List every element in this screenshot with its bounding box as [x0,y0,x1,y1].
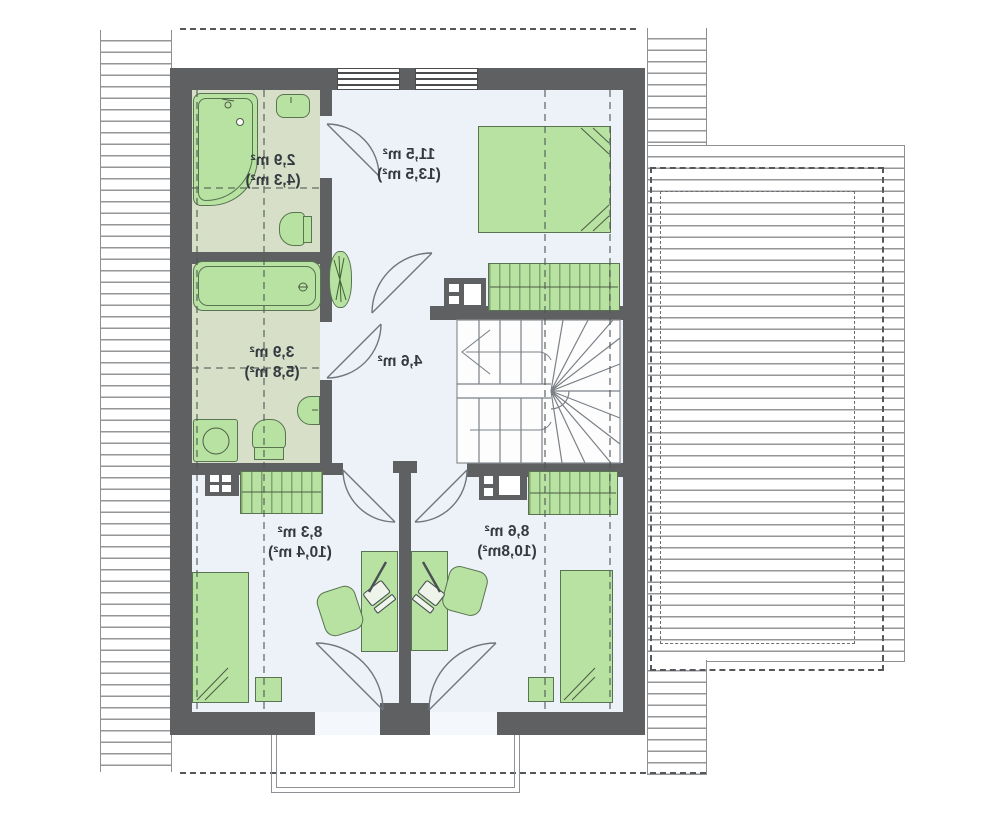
sink-icon [276,94,310,118]
window-top-2 [415,68,478,90]
wall-ensuite-b [320,178,332,252]
balcony-door-opening-left [315,712,382,735]
bed-icon [560,570,613,703]
toilet-tank [303,216,312,243]
bathtub-icon [193,261,321,311]
dresser-icon [444,278,486,311]
wall-center-cap [393,461,417,473]
wall-bathroom-b [320,380,332,463]
wall-ensuite-a [320,90,332,116]
toilet-icon [252,419,286,449]
dresser-icon [205,471,239,496]
balcony-railing-inner [276,735,515,788]
sink-icon [297,396,320,425]
roof-hatch-right-strip-bottom [647,660,707,775]
potted-plant-icon [329,251,352,308]
roof-hatch-left-strip [100,30,172,772]
roof-hatch-right-strip-top [647,28,707,145]
double-bed-icon [478,126,611,233]
bed-icon [192,572,249,703]
wardrobe-icon [528,471,618,515]
floor-plan-canvas: 2,9 m² (4,3 m²) 11,5 m² (13,5 m²) 3,9 m²… [0,0,1000,823]
roof-edge-dashed-top [180,28,636,30]
washing-machine-icon [193,419,238,462]
toilet-icon [279,212,305,246]
nightstand-icon [528,677,554,702]
wardrobe-icon [488,263,620,311]
wall-center-bottom-stub [380,703,430,735]
dresser-icon [479,471,527,500]
roof-projection-dashed-inner [660,191,855,644]
window-top-1 [337,68,400,90]
balcony-door-opening-right [428,712,497,735]
desk-icon [361,551,398,652]
wardrobe-icon [240,471,323,514]
toilet-tank [254,447,284,460]
wall-center-partition [399,473,411,712]
nightstand-icon [255,677,282,702]
